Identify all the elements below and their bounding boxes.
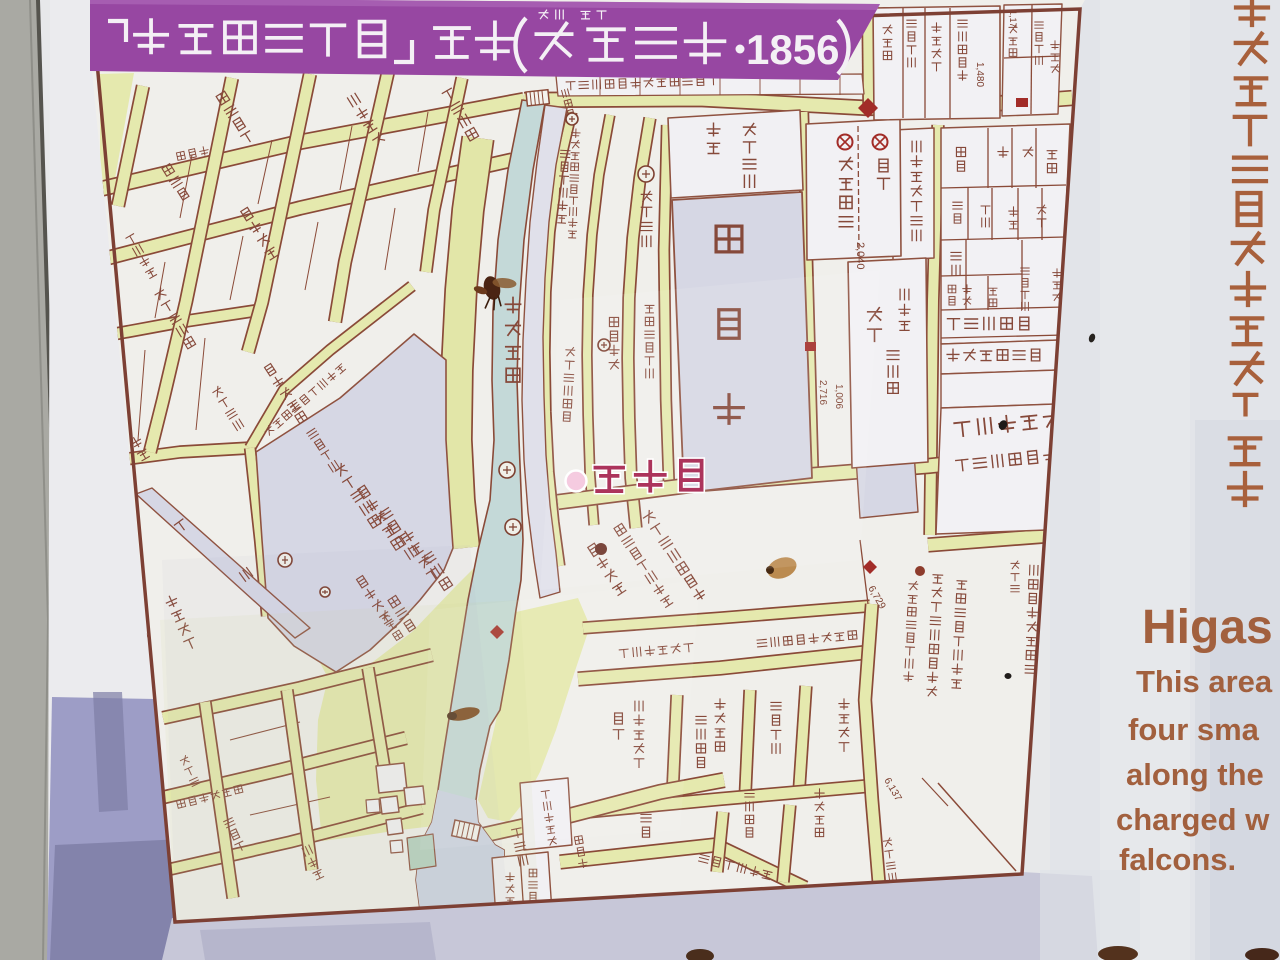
svg-text:Higas: Higas (1142, 601, 1273, 654)
svg-text:This area: This area (1136, 664, 1273, 699)
svg-text:1,480: 1,480 (974, 62, 985, 87)
svg-text:falcons.: falcons. (1119, 842, 1236, 877)
svg-text:four sma: four sma (1128, 712, 1260, 747)
svg-text:charged w: charged w (1116, 802, 1270, 837)
svg-text:along the: along the (1126, 757, 1264, 792)
svg-text:1856: 1856 (746, 26, 839, 73)
svg-text:2,040: 2,040 (854, 242, 866, 270)
